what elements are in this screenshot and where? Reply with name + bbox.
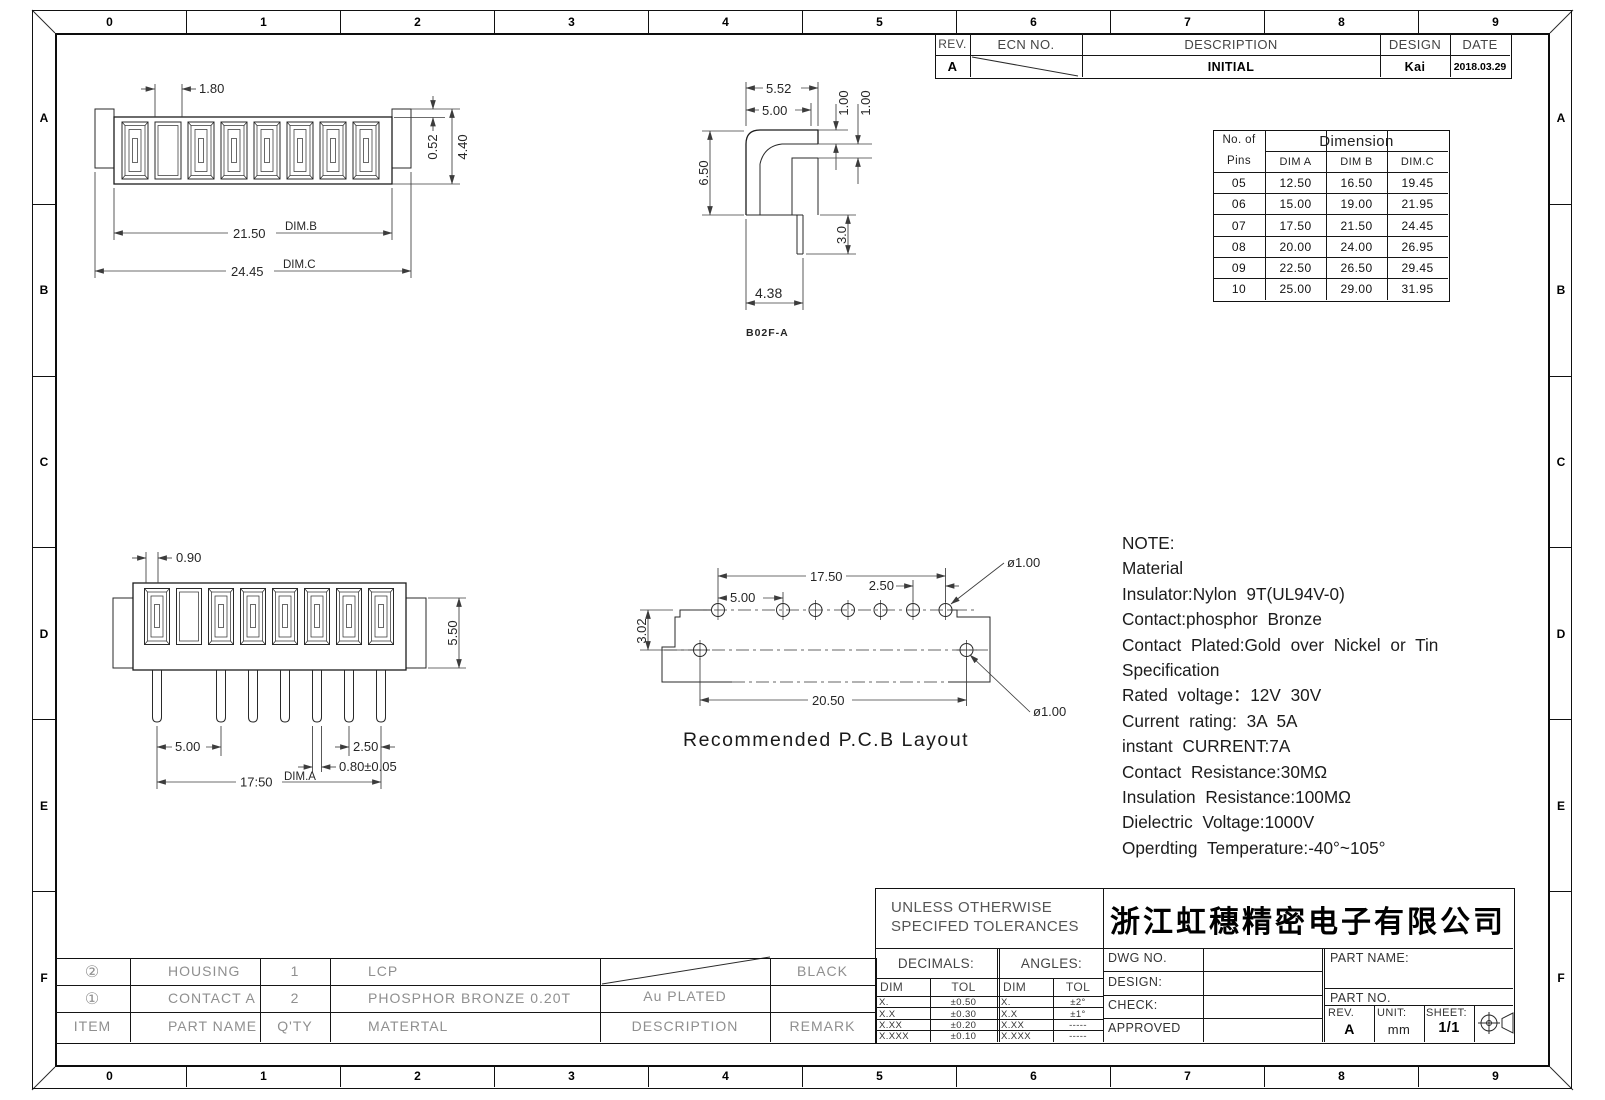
- grid-ref-cell: F: [33, 892, 55, 1063]
- qty-cell: 1: [260, 963, 330, 979]
- company-name: 浙江虹穗精密电子有限公司: [1106, 897, 1510, 941]
- description-value: INITIAL: [1082, 60, 1380, 74]
- table-cell: 12.50: [1265, 176, 1326, 190]
- table-cell: 22.50: [1265, 261, 1326, 275]
- table-cell: 16.50: [1326, 176, 1387, 190]
- design-value: Kai: [1380, 60, 1450, 74]
- note-line: Rated voltage：12V 30V: [1122, 683, 1532, 708]
- note-line: Current rating: 3A 5A: [1122, 709, 1532, 734]
- note-line: Operdting Temperature:-40°~105°: [1122, 836, 1532, 861]
- tolerance-note: SPECIFED TOLERANCES: [891, 918, 1079, 935]
- table-cell: 19.00: [1326, 197, 1387, 211]
- grid-ref-cell: A: [1550, 33, 1572, 205]
- grid-ref-cell: B: [1550, 205, 1572, 377]
- column-header: Q'TY: [260, 1018, 330, 1034]
- tol-cell: X.XX: [1001, 1020, 1024, 1031]
- unit-value: mm: [1374, 1022, 1424, 1037]
- table-cell: 10: [1213, 282, 1265, 296]
- tol-cell: ±0.50: [930, 997, 997, 1008]
- grid-ref-cell: 4: [649, 11, 803, 33]
- table-cell: 05: [1213, 176, 1265, 190]
- table-cell: 06: [1213, 197, 1265, 211]
- dwg-no-label: DWG NO.: [1108, 951, 1167, 965]
- ecn-header: ECN NO.: [970, 37, 1082, 52]
- part-name-cell: CONTACT A: [168, 990, 256, 1006]
- grid-ref-cell: 1: [187, 11, 341, 33]
- note-block: NOTE: Material Insulator:Nylon 9T(UL94V-…: [1122, 531, 1532, 861]
- column-header: REMARK: [770, 1018, 875, 1034]
- table-cell: 26.50: [1326, 261, 1387, 275]
- grid-ref-cell: 9: [1419, 11, 1572, 33]
- grid-ref-cell: D: [33, 548, 55, 720]
- note-line: Dielectric Voltage:1000V: [1122, 810, 1532, 835]
- col-header: Pins: [1213, 155, 1265, 167]
- column-header: PART NAME: [168, 1018, 257, 1034]
- grid-ref-cell: 0: [33, 1065, 187, 1087]
- table-cell: 26.95: [1387, 240, 1448, 254]
- grid-ref-cell: 8: [1265, 1065, 1419, 1087]
- grid-ruler-bottom: 0 1 2 3 4 5 6 7 8 9: [33, 1065, 1572, 1087]
- unit-label: UNIT:: [1377, 1007, 1407, 1019]
- table-cell: 29.45: [1387, 261, 1448, 275]
- grid-ruler-right: A B C D E F: [1550, 33, 1572, 1063]
- grid-ref-cell: F: [1550, 892, 1572, 1063]
- note-line: Contact Resistance:30MΩ: [1122, 760, 1532, 785]
- remark-cell: BLACK: [770, 963, 875, 979]
- sheet-label: SHEET:: [1426, 1007, 1467, 1019]
- col-header: DIM B: [1326, 156, 1387, 168]
- date-value: 2018.03.29: [1450, 61, 1510, 73]
- grid-ref-cell: 5: [803, 1065, 957, 1087]
- note-line: Specification: [1122, 658, 1532, 683]
- design-label: DESIGN:: [1108, 975, 1162, 989]
- col-header: No. of: [1213, 134, 1265, 146]
- rev-value: A: [935, 59, 970, 74]
- tol-cell: X.XXX: [879, 1031, 909, 1042]
- note-line: instant CURRENT:7A: [1122, 734, 1532, 759]
- item-number: ②: [55, 962, 130, 982]
- tol-cell: ±0.30: [930, 1009, 997, 1020]
- grid-ref-cell: B: [33, 205, 55, 377]
- design-header: DESIGN: [1380, 37, 1450, 52]
- part-no-label: PART NO.: [1330, 991, 1391, 1005]
- grid-ref-cell: C: [1550, 377, 1572, 549]
- grid-ref-cell: 2: [341, 11, 495, 33]
- table-title: Dimension: [1265, 133, 1448, 150]
- description-cell: Au PLATED: [600, 988, 770, 1004]
- note-line: Insulation Resistance:100MΩ: [1122, 785, 1532, 810]
- angles-label: ANGLES:: [1000, 956, 1103, 971]
- tol-cell: ±0.10: [930, 1031, 997, 1042]
- description-header: DESCRIPTION: [1082, 37, 1380, 52]
- grid-ref-cell: 1: [187, 1065, 341, 1087]
- grid-ref-cell: 3: [495, 11, 649, 33]
- rev-value: A: [1325, 1021, 1374, 1037]
- tol-cell: X.XXX: [1001, 1031, 1031, 1042]
- table-cell: 09: [1213, 261, 1265, 275]
- tol-cell: -----: [1053, 1031, 1103, 1042]
- tol-cell: ±0.20: [930, 1020, 997, 1031]
- grid-ref-cell: 3: [495, 1065, 649, 1087]
- note-line: Material: [1122, 556, 1532, 581]
- note-line: Contact Plated:Gold over Nickel or Tin: [1122, 633, 1532, 658]
- grid-ref-cell: 7: [1111, 11, 1265, 33]
- grid-ref-cell: 9: [1419, 1065, 1572, 1087]
- tol-header: TOL: [1053, 980, 1103, 994]
- note-line: NOTE:: [1122, 531, 1532, 556]
- tol-header: TOL: [930, 980, 997, 994]
- part-name-label: PART NAME:: [1330, 951, 1409, 965]
- note-line: Contact:phosphor Bronze: [1122, 607, 1532, 632]
- table-cell: 24.00: [1326, 240, 1387, 254]
- column-header: MATERTAL: [368, 1018, 448, 1034]
- tol-cell: ±2°: [1053, 997, 1103, 1008]
- rev-header: REV.: [935, 37, 970, 51]
- part-name-cell: HOUSING: [168, 963, 240, 979]
- grid-ruler-top: 0 1 2 3 4 5 6 7 8 9: [33, 11, 1572, 33]
- tol-cell: X.: [879, 997, 889, 1008]
- material-cell: LCP: [368, 963, 398, 979]
- grid-ruler-left: A B C D E F: [33, 33, 55, 1063]
- tol-cell: -----: [1053, 1020, 1103, 1031]
- grid-ref-cell: 0: [33, 11, 187, 33]
- table-cell: 20.00: [1265, 240, 1326, 254]
- column-header: ITEM: [55, 1018, 130, 1034]
- table-cell: 31.95: [1387, 282, 1448, 296]
- grid-ref-cell: 5: [803, 11, 957, 33]
- grid-ref-cell: 8: [1265, 11, 1419, 33]
- grid-ref-cell: 7: [1111, 1065, 1265, 1087]
- table-cell: 25.00: [1265, 282, 1326, 296]
- tol-cell: X.X: [879, 1009, 896, 1020]
- grid-ref-cell: 2: [341, 1065, 495, 1087]
- grid-ref-cell: E: [33, 720, 55, 892]
- table-cell: 24.45: [1387, 219, 1448, 233]
- decimals-label: DECIMALS:: [875, 956, 997, 971]
- approved-label: APPROVED: [1108, 1021, 1181, 1035]
- col-header: DIM.C: [1387, 156, 1448, 168]
- tolerance-note: UNLESS OTHERWISE: [891, 899, 1052, 916]
- material-cell: PHOSPHOR BRONZE 0.20T: [368, 990, 571, 1006]
- engineering-drawing-sheet: 1.80 0.52 4.40 21.50 DIM.B 24.45 DIM.C: [0, 0, 1605, 1100]
- col-header: DIM A: [1265, 156, 1326, 168]
- table-cell: 08: [1213, 240, 1265, 254]
- column-header: DESCRIPTION: [600, 1018, 770, 1034]
- table-cell: 29.00: [1326, 282, 1387, 296]
- item-number: ①: [55, 989, 130, 1009]
- grid-ref-cell: D: [1550, 548, 1572, 720]
- table-cell: 07: [1213, 219, 1265, 233]
- grid-ref-cell: C: [33, 377, 55, 549]
- tol-cell: X.XX: [879, 1020, 902, 1031]
- grid-ref-cell: A: [33, 33, 55, 205]
- check-label: CHECK:: [1108, 998, 1158, 1012]
- grid-ref-cell: 6: [957, 1065, 1111, 1087]
- tol-cell: X.X: [1001, 1009, 1018, 1020]
- table-cell: 21.95: [1387, 197, 1448, 211]
- tol-cell: X.: [1001, 997, 1011, 1008]
- table-cell: 15.00: [1265, 197, 1326, 211]
- grid-ref-cell: E: [1550, 720, 1572, 892]
- table-cell: 21.50: [1326, 219, 1387, 233]
- qty-cell: 2: [260, 990, 330, 1006]
- sheet-value: 1/1: [1424, 1020, 1474, 1036]
- tol-cell: ±1°: [1053, 1009, 1103, 1020]
- note-line: Insulator:Nylon 9T(UL94V-0): [1122, 582, 1532, 607]
- dim-header: DIM: [1003, 980, 1026, 994]
- dim-header: DIM: [880, 980, 903, 994]
- table-cell: 19.45: [1387, 176, 1448, 190]
- grid-ref-cell: 4: [649, 1065, 803, 1087]
- rev-label: REV.: [1328, 1007, 1354, 1019]
- date-header: DATE: [1450, 37, 1510, 52]
- table-cell: 17.50: [1265, 219, 1326, 233]
- grid-ref-cell: 6: [957, 11, 1111, 33]
